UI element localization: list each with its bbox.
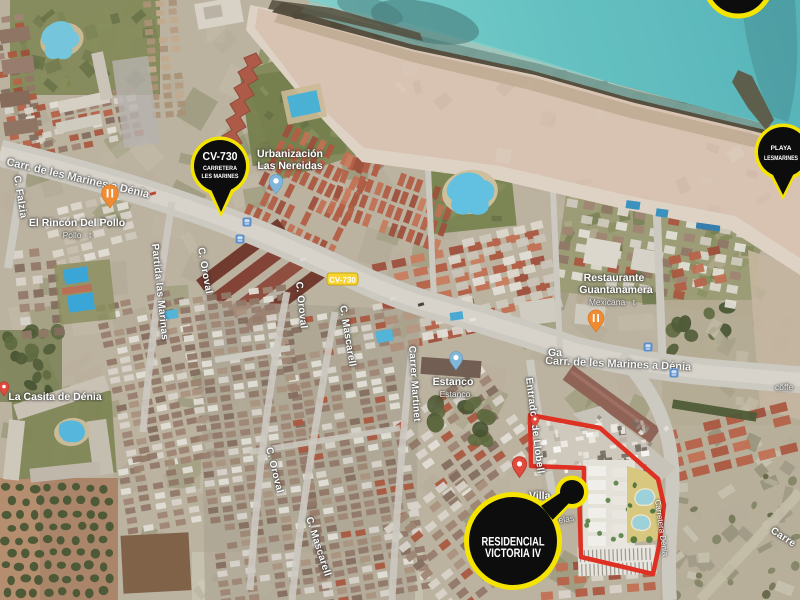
svg-text:LES MARINES: LES MARINES — [202, 173, 239, 180]
svg-text:Las Nereidas: Las Nereidas — [257, 160, 323, 172]
svg-text:Pollo · t: Pollo · t — [63, 230, 92, 240]
svg-text:Guantanamera: Guantanamera — [579, 284, 653, 296]
svg-text:VICTORIA IV: VICTORIA IV — [485, 546, 542, 560]
svg-text:Urbanización: Urbanización — [257, 148, 323, 160]
svg-text:CV-730: CV-730 — [203, 151, 238, 163]
svg-text:cöffe: cöffe — [775, 382, 794, 392]
svg-text:CV-730: CV-730 — [329, 276, 356, 285]
svg-text:LESMARINES: LESMARINES — [764, 155, 799, 162]
svg-text:Estanco: Estanco — [433, 376, 474, 388]
svg-text:Mexicana · t: Mexicana · t — [589, 297, 636, 307]
svg-text:El Rincón Del Pollo: El Rincón Del Pollo — [29, 217, 125, 229]
svg-text:CARRETERA: CARRETERA — [203, 165, 237, 172]
svg-text:PLAYA: PLAYA — [771, 145, 792, 152]
svg-text:Estanco: Estanco — [440, 389, 471, 399]
svg-text:Restaurante: Restaurante — [584, 272, 645, 284]
svg-text:La Casita de Dénia: La Casita de Dénia — [8, 391, 102, 403]
svg-text:Ga: Ga — [548, 347, 562, 359]
